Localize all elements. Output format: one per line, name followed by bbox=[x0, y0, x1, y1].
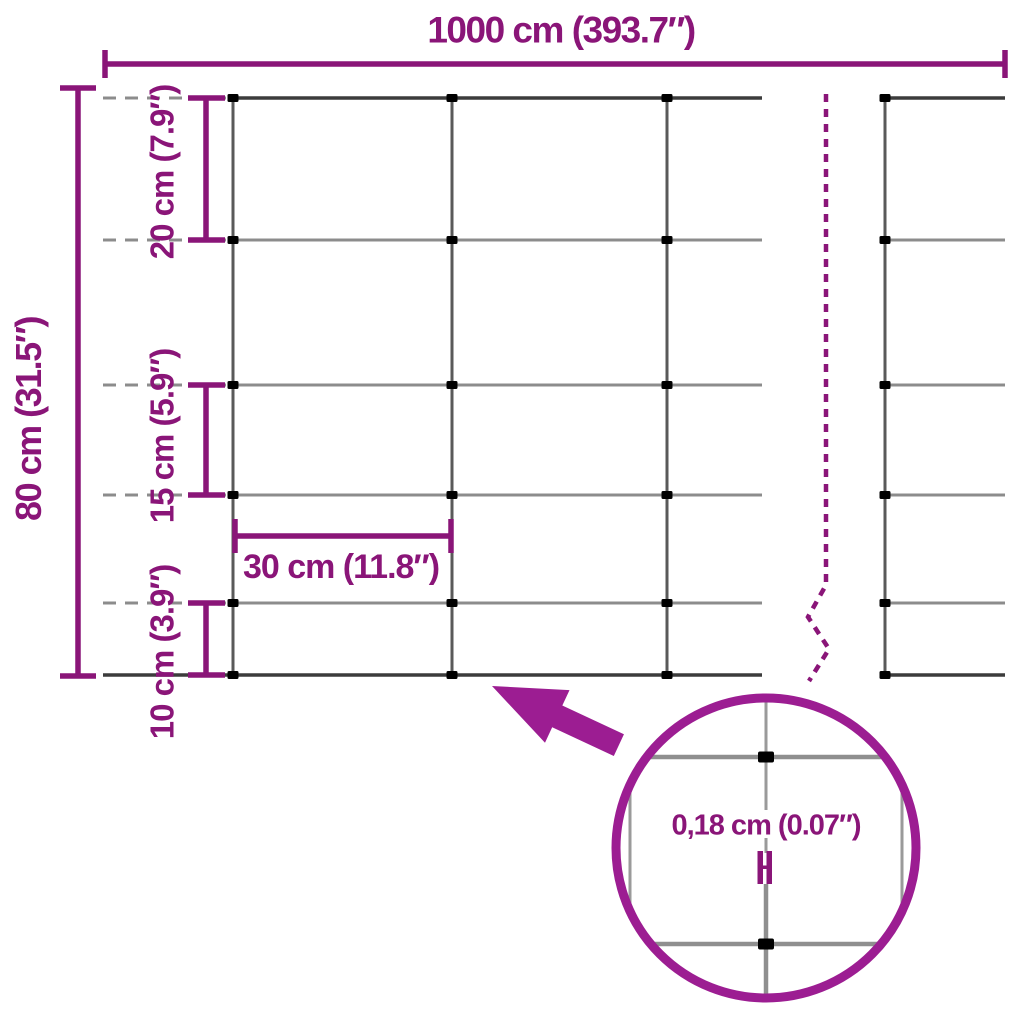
row-spacing-20cm-label: 20 cm (7.9″) bbox=[146, 85, 179, 259]
total-width-label: 1000 cm (393.7″) bbox=[427, 12, 694, 49]
bracket-20cm bbox=[188, 98, 225, 240]
row-spacing-10cm-label: 10 cm (3.9″) bbox=[146, 565, 179, 739]
bracket-15cm bbox=[188, 385, 225, 495]
mesh-panel-right bbox=[880, 94, 1006, 679]
wire-thickness-label: 0,18 cm (0.07″) bbox=[671, 812, 860, 841]
row-spacing-15cm-label: 15 cm (5.9″) bbox=[146, 349, 179, 523]
magnifier-circle bbox=[616, 698, 916, 1000]
bracket-10cm bbox=[188, 603, 225, 675]
column-spacing-30cm-label: 30 cm (11.8″) bbox=[243, 550, 439, 584]
product-dimension-diagram: 1000 cm (393.7″) 80 cm (31.5″) 20 cm (7.… bbox=[0, 0, 1024, 1024]
total-height-label: 80 cm (31.5″) bbox=[11, 317, 47, 521]
height-dimension-line bbox=[60, 88, 96, 676]
break-line bbox=[808, 94, 829, 681]
width-dimension-line bbox=[105, 50, 1005, 78]
